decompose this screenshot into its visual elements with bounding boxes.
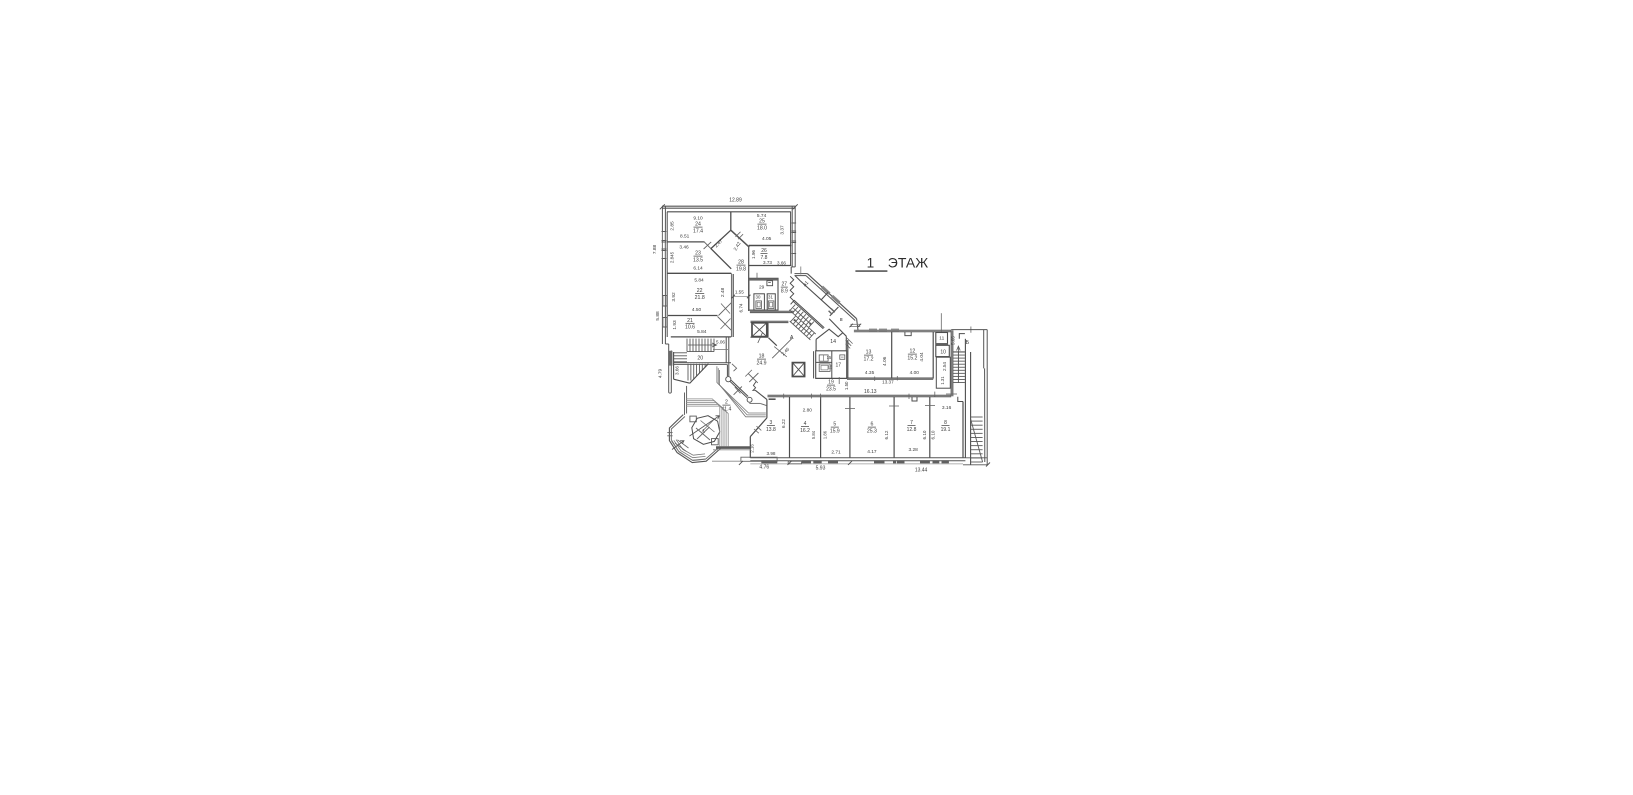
svg-text:1.86: 1.86 (822, 430, 827, 439)
svg-text:31: 31 (768, 295, 773, 300)
svg-text:16.2: 16.2 (800, 428, 810, 434)
svg-text:6.12: 6.12 (884, 430, 889, 439)
svg-text:2.80: 2.80 (803, 408, 813, 414)
svg-text:30: 30 (756, 295, 761, 300)
svg-text:3.66: 3.66 (675, 366, 680, 375)
svg-text:10.6: 10.6 (685, 325, 695, 331)
svg-text:4.00: 4.00 (910, 370, 920, 376)
svg-text:25.3: 25.3 (867, 429, 877, 435)
svg-text:3.92: 3.92 (671, 292, 677, 302)
svg-text:13.37: 13.37 (882, 380, 894, 385)
svg-text:в: в (840, 317, 843, 323)
svg-text:17.4: 17.4 (693, 229, 703, 235)
svg-text:3.98: 3.98 (767, 451, 776, 456)
svg-text:13.8: 13.8 (766, 427, 776, 433)
svg-text:7.88: 7.88 (652, 245, 658, 255)
svg-text:17: 17 (836, 362, 842, 368)
svg-text:3.73: 3.73 (763, 260, 772, 265)
svg-text:5.88: 5.88 (655, 311, 661, 321)
svg-text:4.76: 4.76 (759, 465, 769, 471)
svg-text:4.05: 4.05 (762, 236, 772, 242)
svg-text:1.93: 1.93 (672, 320, 678, 330)
svg-text:3.46: 3.46 (679, 244, 689, 250)
svg-text:13.44: 13.44 (915, 467, 928, 473)
svg-text:15.2: 15.2 (907, 356, 917, 362)
svg-text:1.31: 1.31 (940, 376, 945, 385)
svg-text:5.74: 5.74 (757, 213, 767, 219)
svg-text:4.79: 4.79 (657, 369, 663, 379)
svg-text:12.89: 12.89 (729, 198, 742, 204)
svg-text:6.14: 6.14 (693, 265, 703, 271)
svg-text:4.50: 4.50 (692, 307, 702, 313)
svg-text:3.37: 3.37 (779, 225, 785, 235)
svg-text:6.22: 6.22 (781, 419, 786, 428)
svg-text:9.10: 9.10 (693, 215, 703, 221)
svg-text:2.85: 2.85 (670, 221, 676, 231)
svg-text:5.93: 5.93 (816, 466, 826, 472)
svg-text:10: 10 (940, 349, 946, 355)
svg-text:ЭТАЖ: ЭТАЖ (888, 256, 929, 271)
svg-text:6.10: 6.10 (931, 430, 936, 439)
svg-text:2.54: 2.54 (942, 362, 947, 371)
svg-text:5.84: 5.84 (694, 277, 704, 283)
svg-text:23.5: 23.5 (826, 387, 836, 393)
svg-text:5.84: 5.84 (697, 329, 707, 335)
svg-text:16.13: 16.13 (864, 389, 877, 395)
svg-text:2.48: 2.48 (720, 288, 726, 298)
svg-text:1.50: 1.50 (844, 381, 849, 390)
svg-text:4.17: 4.17 (867, 449, 877, 455)
svg-text:5.84: 5.84 (811, 430, 816, 439)
svg-text:11: 11 (939, 336, 944, 342)
svg-text:8.51: 8.51 (680, 234, 690, 240)
svg-text:17.2: 17.2 (863, 357, 873, 363)
svg-text:6.10: 6.10 (922, 430, 927, 439)
svg-text:24.9: 24.9 (756, 361, 766, 367)
svg-text:15.9: 15.9 (830, 429, 840, 435)
svg-text:13.5: 13.5 (693, 258, 703, 264)
svg-text:4.06: 4.06 (882, 356, 888, 366)
svg-text:3.28: 3.28 (909, 447, 919, 453)
svg-text:2.845: 2.845 (670, 251, 675, 263)
svg-text:29: 29 (759, 284, 765, 290)
svg-text:4.35: 4.35 (865, 370, 875, 376)
svg-text:16: 16 (828, 365, 833, 370)
svg-text:8.9: 8.9 (781, 289, 788, 295)
svg-text:20: 20 (697, 356, 703, 362)
svg-text:1.96: 1.96 (751, 250, 756, 259)
svg-text:14: 14 (830, 339, 836, 345)
svg-text:15: 15 (827, 355, 832, 360)
svg-text:2.71: 2.71 (831, 449, 841, 455)
svg-text:6.74: 6.74 (738, 303, 743, 312)
svg-text:4.04: 4.04 (919, 352, 925, 362)
svg-text:3.16: 3.16 (942, 405, 952, 411)
svg-text:1: 1 (867, 255, 875, 270)
svg-text:21.8: 21.8 (695, 295, 705, 301)
svg-text:1.55: 1.55 (735, 290, 744, 295)
svg-text:19.8: 19.8 (736, 267, 746, 273)
svg-text:3.66: 3.66 (777, 260, 786, 265)
svg-text:19.1: 19.1 (941, 427, 951, 433)
svg-text:5.06: 5.06 (716, 339, 725, 344)
svg-text:18.0: 18.0 (757, 226, 767, 232)
svg-text:12.8: 12.8 (907, 427, 917, 433)
svg-text:Б: Б (966, 340, 970, 346)
